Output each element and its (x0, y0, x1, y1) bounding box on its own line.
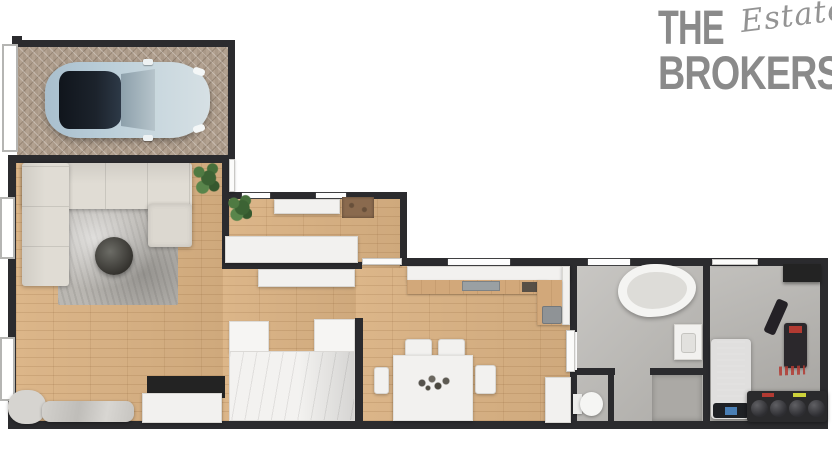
tall-cabinet (545, 377, 571, 423)
door-kitchen (362, 258, 402, 265)
marble-bench (42, 401, 134, 422)
stairs-landing-right (314, 319, 355, 353)
window-living-left-1 (0, 197, 15, 259)
toilet (573, 391, 603, 417)
door-gym (712, 259, 758, 265)
estate-brokers-logo: THE Estate BROKERS (658, 2, 832, 94)
door-entry (229, 159, 235, 192)
sofa-chaise (148, 204, 192, 247)
wall-garage-top (14, 40, 234, 47)
kettlebell-2 (770, 400, 787, 417)
entry-sideboard (274, 199, 340, 214)
treadmill-console (713, 403, 749, 418)
kettlebell-3 (789, 400, 806, 417)
kitchen-counter-side-panel (562, 266, 570, 325)
dining-chair-right (475, 365, 496, 394)
door-bathroom (566, 330, 575, 372)
kettlebell-4 (808, 400, 825, 417)
pouf (8, 390, 46, 424)
rack-tag-red (762, 393, 774, 397)
car-mirror-top (143, 59, 153, 65)
gym-floor-markings (779, 365, 805, 375)
logo-word-the: THE (658, 2, 724, 52)
toilet-bowl (580, 392, 603, 416)
wall-toilet-partition-v (608, 368, 614, 425)
hall-sideboard (258, 269, 355, 287)
tv-console (142, 393, 222, 423)
staircase (229, 351, 355, 421)
bathtub-basin (627, 272, 687, 309)
table-centerpiece (414, 373, 454, 393)
potted-plant-living (190, 160, 220, 200)
wall-bathroom-left-upper (570, 262, 577, 332)
cable-machine (784, 323, 807, 368)
treadmill-belt (717, 341, 745, 403)
sofa-left-section (22, 163, 69, 286)
window-living-left-2 (0, 337, 15, 401)
garage-door (2, 44, 18, 152)
logo-word-brokers: BROKERS (658, 50, 801, 95)
shower-floor (652, 375, 702, 421)
treadmill (711, 339, 751, 419)
cable-machine-label (789, 326, 802, 333)
bathroom-vanity (674, 324, 702, 360)
wall-stairs-right (355, 318, 363, 425)
kitchen-appliance (542, 306, 562, 324)
kitchen-counter-back (407, 266, 570, 281)
car-roof-window (59, 71, 121, 129)
gym-shelf (783, 264, 821, 282)
entry-desk (225, 236, 358, 263)
wall-shower-partition (650, 368, 703, 375)
wall-garage-right (228, 40, 235, 163)
dining-chair-left (374, 367, 389, 394)
treadmill-screen (725, 407, 737, 415)
wall-entry-bottom (222, 262, 362, 269)
rack-tag-yellow (793, 393, 806, 397)
floorplan-render: THE Estate BROKERS (0, 0, 832, 468)
car-mirror-bottom (143, 135, 153, 141)
window-bathroom (588, 259, 630, 265)
coffee-table (95, 237, 133, 275)
wall-bathroom-gym-divider (703, 258, 710, 425)
stairs-landing-left (229, 321, 269, 353)
car (45, 62, 210, 138)
kettlebell-1 (751, 400, 768, 417)
window-kitchen (448, 259, 510, 265)
vanity-sink (681, 333, 696, 353)
kettlebell-rack (747, 391, 827, 422)
car-windshield (121, 69, 155, 131)
potted-plant-entry (226, 194, 252, 224)
wall-entry-right (400, 192, 407, 266)
doormat (342, 197, 374, 218)
logo-word-estate: Estate (738, 0, 832, 42)
kitchen-sink (462, 281, 500, 291)
